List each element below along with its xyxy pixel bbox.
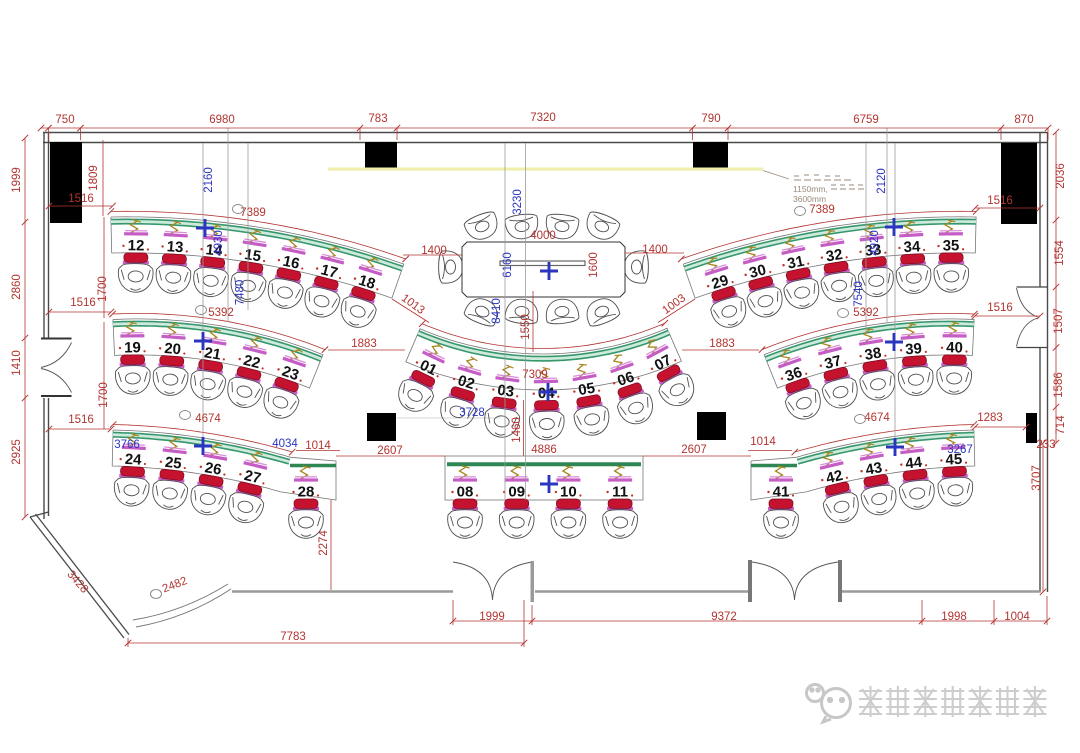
svg-text:870: 870	[1014, 114, 1033, 126]
svg-text:1150mm,: 1150mm,	[793, 184, 828, 194]
svg-text:2274: 2274	[318, 530, 330, 556]
svg-text:1550: 1550	[520, 314, 532, 340]
svg-text:04: 04	[538, 385, 556, 402]
svg-text:7540: 7540	[853, 281, 865, 307]
svg-text:1586: 1586	[1053, 372, 1065, 398]
svg-text:1460: 1460	[511, 417, 523, 443]
svg-text:8410: 8410	[491, 298, 503, 324]
svg-text:1516: 1516	[70, 297, 96, 309]
svg-text:6759: 6759	[853, 114, 879, 126]
svg-text:24: 24	[124, 451, 142, 469]
svg-text:2607: 2607	[377, 445, 403, 457]
svg-text:1410: 1410	[11, 350, 23, 376]
svg-text:35: 35	[943, 237, 960, 254]
svg-text:5392: 5392	[853, 307, 879, 319]
svg-text:2036: 2036	[1055, 163, 1067, 189]
svg-text:783: 783	[368, 113, 387, 125]
svg-text:790: 790	[701, 113, 720, 125]
svg-text:1516: 1516	[68, 414, 94, 426]
svg-text:2120: 2120	[876, 168, 888, 194]
svg-text:3600mm: 3600mm	[793, 194, 826, 204]
svg-text:1998: 1998	[941, 611, 967, 623]
svg-text:08: 08	[457, 484, 474, 501]
svg-text:1014: 1014	[750, 436, 776, 448]
svg-text:3230: 3230	[512, 189, 524, 215]
svg-text:1516: 1516	[987, 302, 1013, 314]
svg-text:7389: 7389	[240, 207, 266, 219]
svg-text:2607: 2607	[681, 444, 707, 456]
svg-text:12: 12	[128, 237, 145, 254]
svg-text:7320: 7320	[530, 112, 556, 124]
svg-text:1999: 1999	[479, 611, 505, 623]
svg-text:4920: 4920	[869, 230, 881, 256]
svg-text:3728: 3728	[459, 407, 485, 419]
svg-text:1014: 1014	[305, 440, 331, 452]
svg-text:1809: 1809	[88, 165, 100, 191]
svg-text:1883: 1883	[709, 338, 735, 350]
svg-text:2860: 2860	[11, 274, 23, 300]
svg-text:09: 09	[508, 484, 525, 501]
svg-text:28: 28	[298, 484, 315, 501]
svg-text:1600: 1600	[588, 252, 600, 278]
svg-text:1283: 1283	[977, 412, 1003, 424]
svg-text:1516: 1516	[68, 193, 94, 205]
svg-text:2160: 2160	[203, 167, 215, 193]
svg-text:7783: 7783	[280, 631, 306, 643]
svg-text:4034: 4034	[272, 438, 298, 450]
svg-text:3707: 3707	[1031, 465, 1043, 491]
svg-text:13: 13	[166, 238, 184, 256]
svg-text:3766: 3766	[114, 439, 140, 451]
svg-text:4886: 4886	[531, 444, 557, 456]
svg-text:1507: 1507	[1053, 308, 1065, 334]
svg-text:1554: 1554	[1054, 240, 1066, 266]
svg-text:11: 11	[612, 484, 628, 501]
svg-text:4674: 4674	[864, 412, 890, 424]
svg-text:6160: 6160	[502, 252, 514, 278]
svg-text:10: 10	[560, 484, 577, 501]
svg-text:1700: 1700	[98, 382, 110, 408]
svg-text:233: 233	[1036, 439, 1055, 451]
svg-text:1999: 1999	[11, 167, 23, 193]
svg-text:5392: 5392	[208, 307, 234, 319]
svg-text:4000: 4000	[530, 230, 556, 242]
svg-text:1004: 1004	[1004, 611, 1030, 623]
svg-text:3267: 3267	[947, 444, 973, 456]
svg-text:750: 750	[55, 114, 74, 126]
svg-text:4930: 4930	[213, 230, 225, 256]
svg-text:9372: 9372	[711, 611, 737, 623]
svg-text:7389: 7389	[809, 204, 835, 216]
svg-text:1400: 1400	[421, 245, 447, 257]
svg-text:4674: 4674	[195, 413, 221, 425]
svg-text:1883: 1883	[351, 338, 377, 350]
svg-text:19: 19	[124, 339, 141, 356]
svg-text:7309: 7309	[522, 369, 548, 381]
svg-text:2925: 2925	[11, 439, 23, 465]
svg-text:6980: 6980	[209, 114, 235, 126]
svg-text:1516: 1516	[987, 195, 1013, 207]
svg-text:40: 40	[946, 339, 963, 356]
svg-text:714: 714	[1055, 415, 1067, 435]
svg-text:7480: 7480	[235, 280, 247, 306]
svg-text:1400: 1400	[642, 244, 668, 256]
svg-text:41: 41	[773, 484, 790, 501]
svg-text:1700: 1700	[97, 276, 109, 302]
